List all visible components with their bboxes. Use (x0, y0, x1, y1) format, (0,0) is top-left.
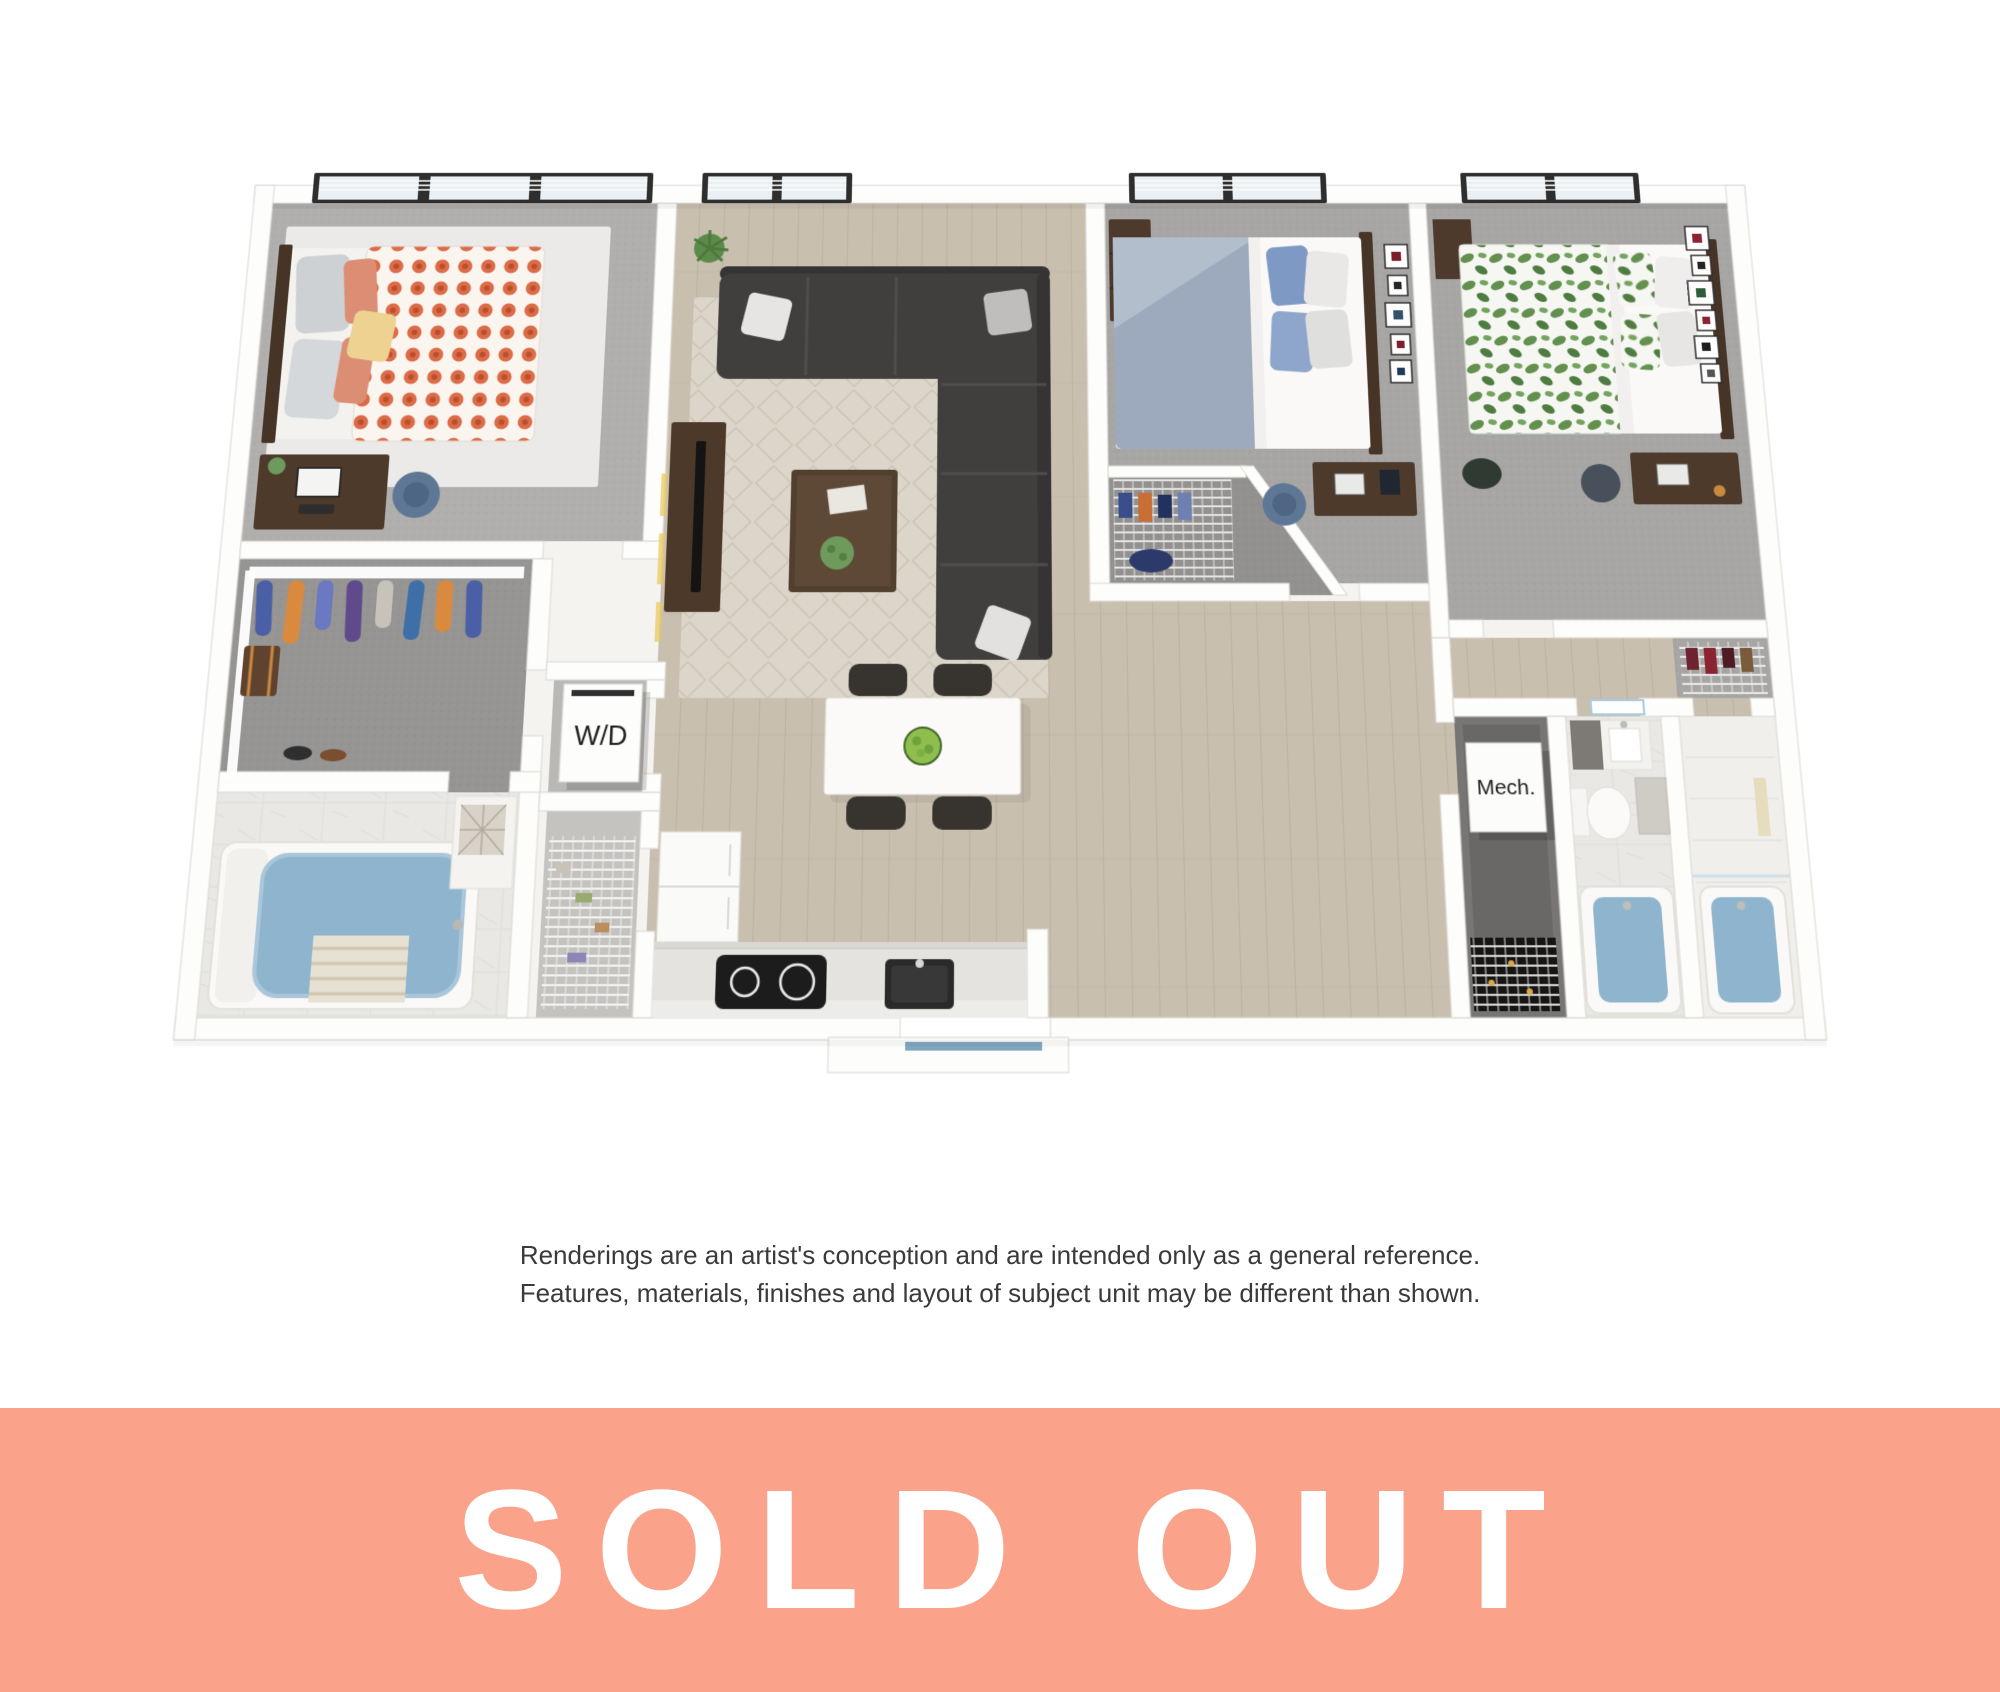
floor-plan-svg: W/D (141, 169, 1858, 1098)
bathtub-water (1710, 897, 1782, 1002)
pillow (1303, 250, 1349, 309)
sold-out-label: SOLD OUT (454, 1452, 1574, 1648)
fruit-bowl (904, 728, 941, 765)
laptop (1334, 474, 1364, 495)
dining-chair (846, 796, 906, 829)
outer-wall-bottom-left (174, 1018, 901, 1040)
dining-chair (932, 796, 992, 829)
monitor (296, 468, 342, 497)
vanity-cabinet (1570, 720, 1604, 769)
bedroom-2-closet (1113, 479, 1234, 580)
backsplash (654, 942, 1027, 948)
dining-chair (848, 664, 907, 696)
magazine (827, 485, 867, 515)
bedroom-3-closet (1679, 642, 1768, 694)
pillow (295, 254, 350, 334)
laptop (1656, 464, 1689, 485)
bedroom-3-window (1460, 173, 1641, 203)
living-room-window (702, 173, 853, 203)
bed-duvet-green (1459, 245, 1627, 434)
bathtub-water (1592, 897, 1669, 1002)
living-room (652, 230, 1052, 698)
mechanical-label: Mech. (1476, 776, 1536, 799)
dining-chair (933, 664, 992, 696)
throw-pillow (983, 288, 1033, 336)
side-cabinet (1635, 778, 1670, 834)
sink-basin (1609, 729, 1642, 762)
disclaimer-line-2: Features, materials, finishes and layout… (0, 1274, 2000, 1312)
bedroom-2-window (1129, 173, 1327, 203)
disclaimer-text: Renderings are an artist's conception an… (0, 1236, 2000, 1312)
suitcase (240, 646, 281, 696)
faucet (915, 959, 923, 968)
pillow (1304, 309, 1353, 369)
washer-dryer-label: W/D (573, 720, 628, 752)
bedroom-1 (253, 227, 611, 530)
sold-out-banner: SOLD OUT (0, 1408, 2000, 1692)
pantry-closet (541, 836, 637, 1009)
outer-wall-bottom-right (1050, 1018, 1826, 1040)
pillow (1621, 313, 1660, 371)
lit-mirror (1591, 700, 1645, 714)
keyboard (298, 504, 334, 514)
disclaimer-line-1: Renderings are an artist's conception an… (0, 1236, 2000, 1274)
floor-plan-rendering: W/D (141, 169, 1858, 1098)
washer-dryer-closet: W/D (558, 684, 650, 790)
bedroom-1-window (312, 173, 654, 203)
